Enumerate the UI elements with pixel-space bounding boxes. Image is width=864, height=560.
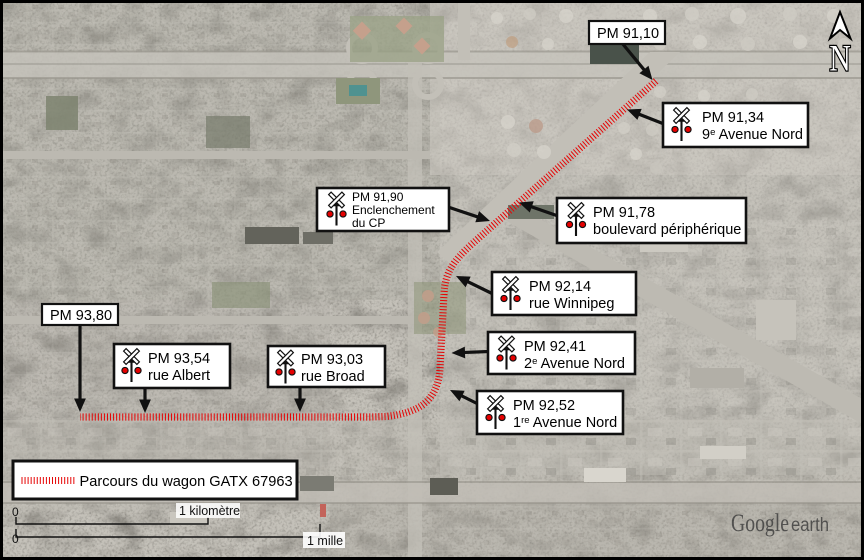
- svg-text:PM 91,10: PM 91,10: [597, 26, 659, 42]
- svg-text:rue Albert: rue Albert: [148, 368, 210, 384]
- svg-text:PM 91,34: PM 91,34: [702, 110, 764, 126]
- svg-text:PM 92,14: PM 92,14: [529, 279, 591, 295]
- svg-text:PM 91,90: PM 91,90: [352, 190, 404, 204]
- svg-text:earth: earth: [791, 515, 829, 536]
- svg-text:PM 93,54: PM 93,54: [148, 351, 210, 367]
- svg-text:Google: Google: [731, 510, 789, 537]
- svg-text:PM 93,03: PM 93,03: [301, 352, 363, 368]
- svg-text:0: 0: [12, 505, 19, 519]
- svg-text:rue Winnipeg: rue Winnipeg: [529, 296, 614, 312]
- svg-text:9e Avenue Nord: 9e Avenue Nord: [702, 127, 803, 143]
- svg-text:1re Avenue Nord: 1re Avenue Nord: [513, 415, 617, 431]
- svg-text:Enclenchement: Enclenchement: [352, 203, 435, 217]
- svg-text:PM 92,52: PM 92,52: [513, 398, 575, 414]
- svg-text:1 kilomètre: 1 kilomètre: [179, 504, 240, 518]
- svg-text:Parcours du wagon GATX 67963: Parcours du wagon GATX 67963: [80, 474, 293, 490]
- svg-text:rue Broad: rue Broad: [301, 369, 365, 385]
- svg-text:N: N: [829, 38, 850, 79]
- svg-text:PM 93,80: PM 93,80: [50, 308, 112, 324]
- svg-text:PM 92,41: PM 92,41: [524, 339, 586, 355]
- svg-text:PM 91,78: PM 91,78: [593, 205, 655, 221]
- svg-text:1 mille: 1 mille: [307, 534, 343, 548]
- svg-text:boulevard périphérique: boulevard périphérique: [593, 222, 741, 238]
- svg-text:2e Avenue Nord: 2e Avenue Nord: [524, 356, 625, 372]
- svg-text:du CP: du CP: [352, 216, 385, 230]
